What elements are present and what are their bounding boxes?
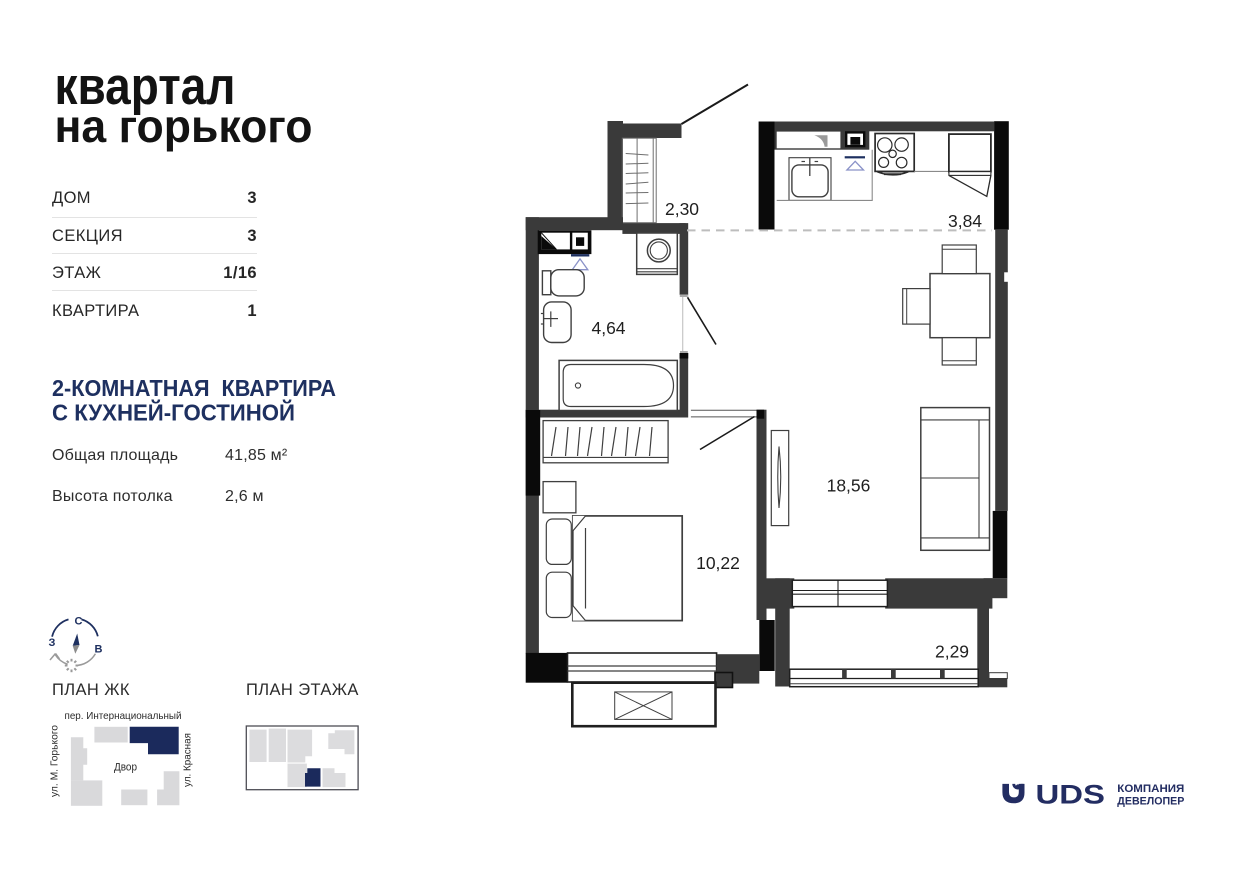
svg-text:КОМПАНИЯ: КОМПАНИЯ	[1117, 783, 1184, 795]
svg-text:4,64: 4,64	[591, 318, 625, 338]
svg-text:З: З	[49, 637, 56, 649]
svg-text:ул. М. Горького: ул. М. Горького	[50, 725, 61, 797]
svg-text:3,84: 3,84	[948, 211, 982, 231]
svg-text:2,30: 2,30	[665, 199, 699, 219]
svg-text:Двор: Двор	[114, 762, 137, 774]
svg-text:2-КОМНАТНАЯ КВАРТИРА: 2-КОМНАТНАЯ КВАРТИРА	[52, 375, 336, 401]
svg-text:2,29: 2,29	[935, 642, 969, 662]
svg-text:С: С	[75, 616, 83, 628]
svg-text:ул. Красная: ул. Красная	[183, 733, 194, 787]
svg-text:на горького: на горького	[55, 100, 313, 152]
svg-text:С КУХНЕЙ-ГОСТИНОЙ: С КУХНЕЙ-ГОСТИНОЙ	[52, 399, 295, 426]
svg-text:В: В	[95, 644, 103, 656]
svg-text:пер. Интернациональный: пер. Интернациональный	[65, 711, 182, 722]
svg-text:UDS: UDS	[1036, 780, 1106, 810]
svg-text:10,22: 10,22	[696, 553, 740, 573]
svg-text:18,56: 18,56	[827, 476, 871, 496]
svg-text:ДЕВЕЛОПЕР: ДЕВЕЛОПЕР	[1117, 795, 1184, 807]
